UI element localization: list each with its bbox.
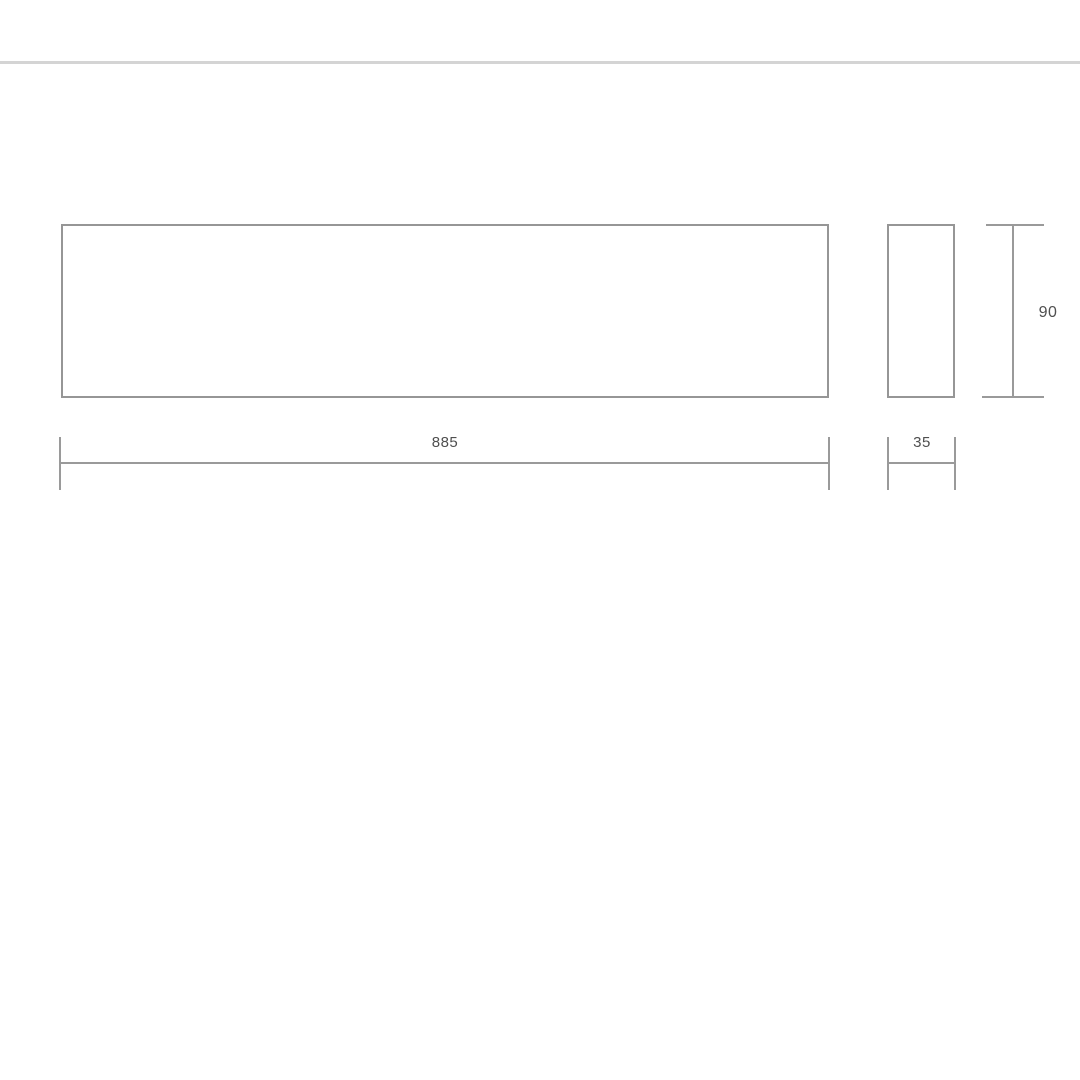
height-dimension-label: 90 xyxy=(1026,305,1070,321)
height-dimension-tick-bottom xyxy=(982,396,1044,398)
depth-dimension-line xyxy=(888,462,956,464)
width-dimension-line xyxy=(60,462,830,464)
height-dimension-line xyxy=(1012,225,1014,397)
dimension-drawing-page: 885 35 90 xyxy=(0,0,1080,1080)
height-dimension-tick-top xyxy=(986,224,1044,226)
front-view-outline xyxy=(61,224,829,398)
side-view-outline xyxy=(887,224,955,398)
depth-dimension-label: 35 xyxy=(888,435,956,450)
page-divider xyxy=(0,61,1080,64)
width-dimension-label: 885 xyxy=(60,435,830,450)
